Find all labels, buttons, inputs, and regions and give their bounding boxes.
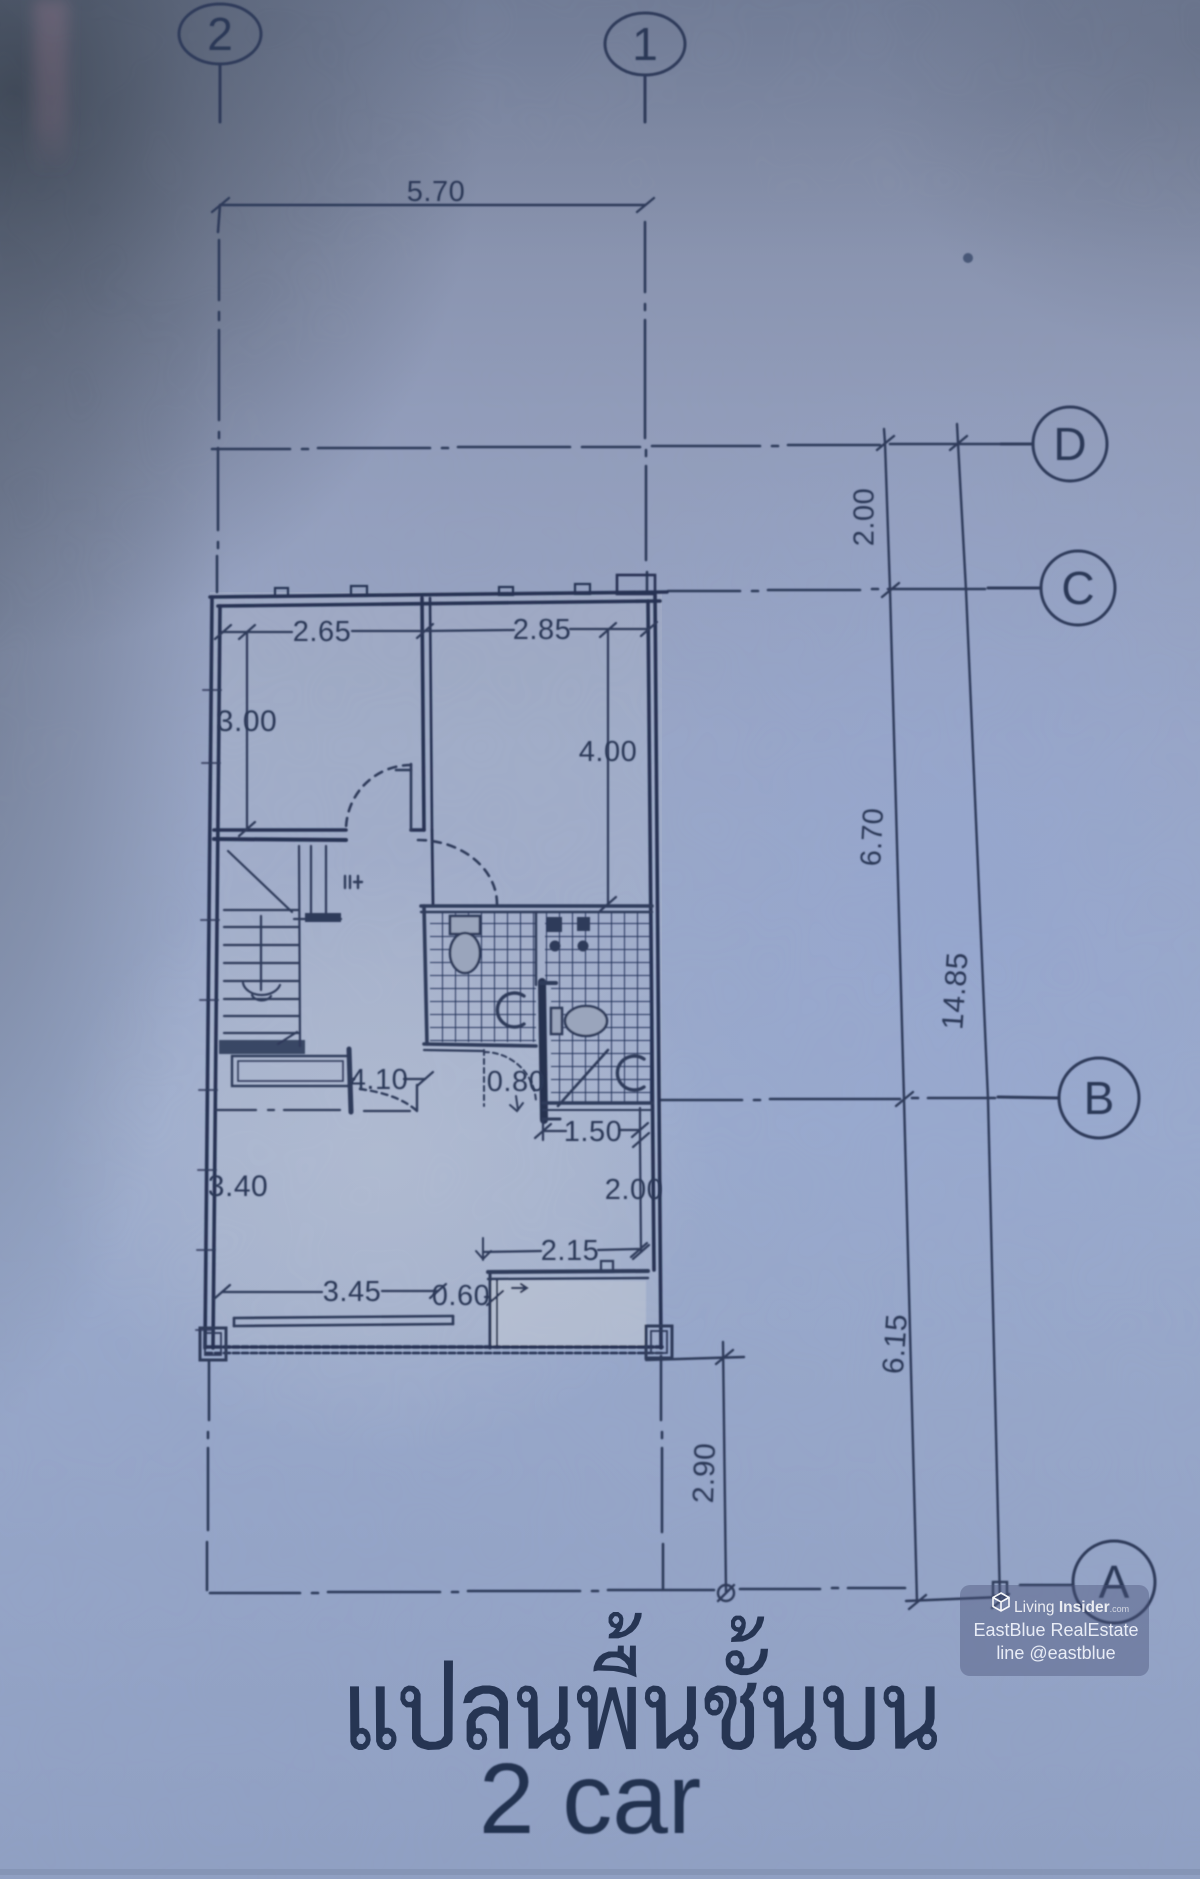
svg-text:C: C [1061, 562, 1094, 614]
svg-text:2.15: 2.15 [541, 1235, 599, 1267]
svg-text:0.60: 0.60 [432, 1280, 490, 1312]
svg-text:5.70: 5.70 [407, 176, 465, 208]
svg-text:14.85: 14.85 [936, 951, 974, 1031]
svg-text:6.70: 6.70 [855, 807, 890, 867]
svg-text:2.65: 2.65 [293, 616, 351, 648]
svg-text:B: B [1084, 1072, 1115, 1124]
svg-text:2: 2 [207, 8, 233, 60]
svg-text:EastBlue RealEstate: EastBlue RealEstate [973, 1620, 1138, 1640]
svg-text:3.40: 3.40 [208, 1170, 268, 1203]
svg-text:1: 1 [632, 18, 658, 70]
svg-text:6.15: 6.15 [877, 1313, 914, 1376]
svg-text:2.00: 2.00 [605, 1174, 663, 1206]
svg-text:line @eastblue: line @eastblue [996, 1643, 1115, 1663]
svg-text:2.85: 2.85 [513, 614, 571, 646]
svg-text:D: D [1053, 418, 1086, 470]
svg-text:3.45: 3.45 [323, 1276, 381, 1308]
svg-text:4.00: 4.00 [579, 736, 637, 768]
svg-text:1.50: 1.50 [564, 1116, 622, 1148]
svg-text:2.90: 2.90 [687, 1442, 722, 1504]
svg-text:0.80: 0.80 [487, 1066, 545, 1098]
svg-text:2.00: 2.00 [849, 488, 881, 546]
svg-text:4.10: 4.10 [350, 1064, 408, 1096]
svg-text:3.00: 3.00 [217, 705, 277, 738]
svg-text:2 car: 2 car [479, 1743, 701, 1855]
